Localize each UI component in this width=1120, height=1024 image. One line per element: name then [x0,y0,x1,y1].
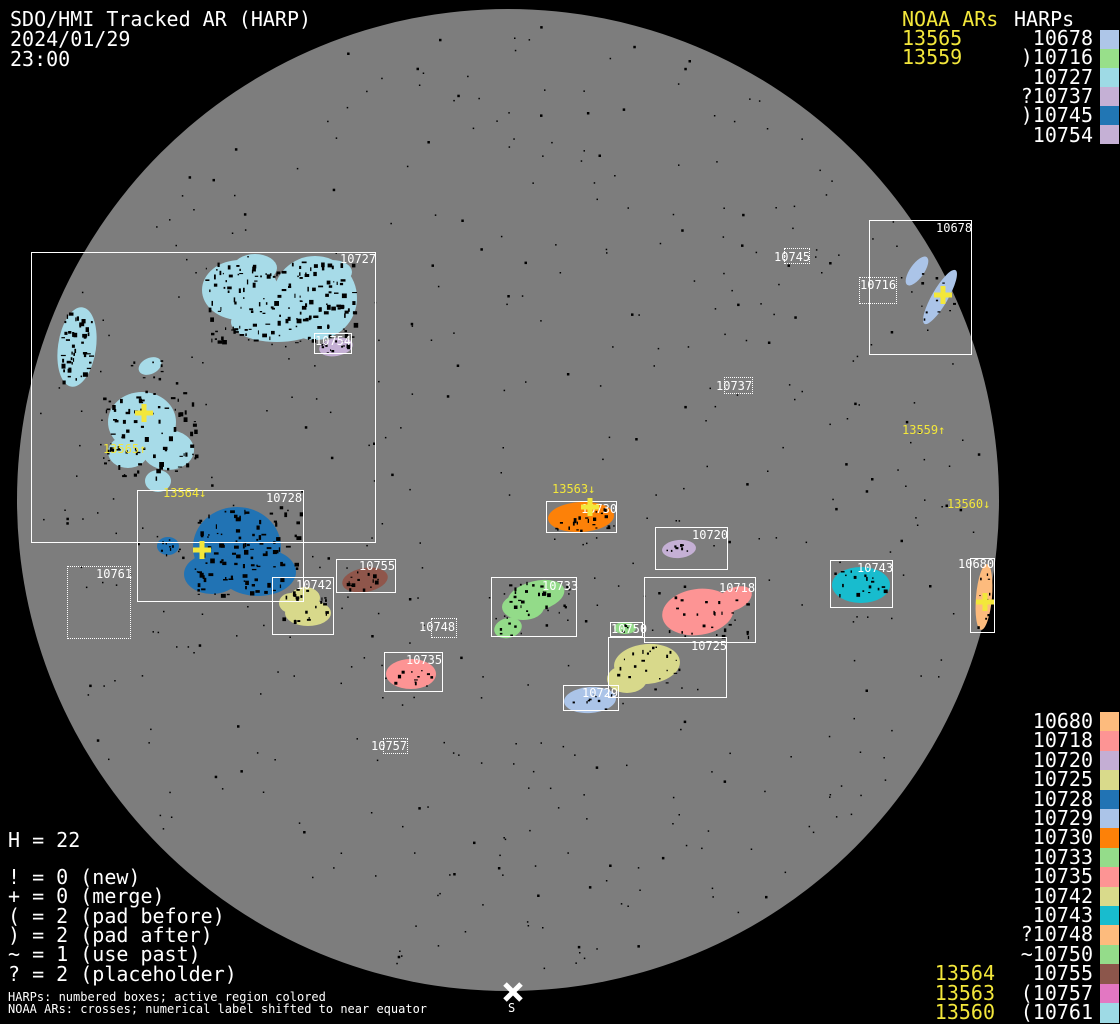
noaa-cross-icon [579,496,601,522]
harp-number: (10761 [1021,1003,1093,1022]
harp-box-label-10750: 10750 [611,623,647,635]
harp-box-label-10737: 10737 [716,380,752,392]
harp-box-label-10745: 10745 [774,251,810,263]
legend-color-swatch-10718 [1100,731,1119,751]
noaa-disk-label-13559: 13559↑ [902,424,945,436]
harp-box-label-10742: 10742 [296,579,332,591]
time-label: 23:00 [10,49,70,69]
noaa-cross-icon [191,539,213,565]
legend-color-swatch-10678 [1100,30,1119,49]
legend-color-swatch-10745 [1100,106,1119,125]
noaa-cross-icon [932,284,954,310]
legend-color-swatch-10725 [1100,770,1119,790]
noaa-disk-label-13560: 13560↓ [947,498,990,510]
noaa-disk-label-13565: 13565↑ [103,443,146,455]
legend-color-swatch-10729 [1100,809,1119,829]
noaa-ar-number: 13559 [902,48,962,67]
legend-color-swatch-10680 [1100,712,1119,732]
legend-color-swatch-10733 [1100,848,1119,868]
harp-box-label-10728: 10728 [266,492,302,504]
harp-box-label-10720: 10720 [692,529,728,541]
harp-box-label-10733: 10733 [542,580,578,592]
legend-color-swatch-10761 [1100,1003,1119,1023]
footnote-noaa: NOAA ARs: crosses; numerical label shift… [8,1003,427,1015]
harp-box-label-10678: 10678 [936,222,972,234]
legend-color-swatch-10728 [1100,790,1119,810]
legend-color-swatch-10720 [1100,751,1119,771]
harp-box-label-10754: 10754 [315,335,351,347]
noaa-disk-label-13564: 13564↓ [163,487,206,499]
page-title: SDO/HMI Tracked AR (HARP) [10,9,311,29]
noaa-disk-label-13563: 13563↓ [552,483,595,495]
noaa-cross-icon [133,402,155,428]
harp-box-label-10727: 10727 [340,253,376,265]
harp-box-label-10716: 10716 [860,279,896,291]
legend-color-swatch-10735 [1100,867,1119,887]
harp-count-label: H = 22 [8,830,80,850]
legend-color-swatch-10716 [1100,49,1119,68]
harp-box-label-10761: 10761 [96,568,132,580]
harp-number: 10754 [1033,126,1093,145]
legend-color-swatch-10742 [1100,887,1119,907]
flag-legend-line: ? = 2 (placeholder) [8,965,237,984]
harp-box-label-10757: 10757 [371,740,407,752]
solar-harp-map: SDO/HMI Tracked AR (HARP) 2024/01/29 23:… [0,0,1120,1024]
harp-box-label-10725: 10725 [691,640,727,652]
harp-box-label-10718: 10718 [719,582,755,594]
legend-color-swatch-10755 [1100,964,1119,984]
noaa-ar-number: 13560 [935,1003,995,1022]
legend-color-swatch-10737 [1100,87,1119,106]
legend-color-swatch-10743 [1100,906,1119,926]
harp-box-label-10748: 10748 [419,621,455,633]
legend-color-swatch-10730 [1100,828,1119,848]
harp-box-label-10680: 10680 [958,558,994,570]
harp-box-label-10755: 10755 [359,560,395,572]
legend-color-swatch-10727 [1100,68,1119,87]
legend-color-swatch-10750 [1100,945,1119,965]
harp-box-label-10735: 10735 [406,654,442,666]
harp-box-label-10743: 10743 [857,562,893,574]
harp-box-label-10729: 10729 [582,687,618,699]
date-label: 2024/01/29 [10,29,130,49]
noaa-cross-icon [974,591,996,617]
legend-color-swatch-10757 [1100,984,1119,1004]
legend-color-swatch-10748 [1100,925,1119,945]
legend-color-swatch-10754 [1100,125,1119,144]
south-pole-label: S [508,1002,515,1014]
